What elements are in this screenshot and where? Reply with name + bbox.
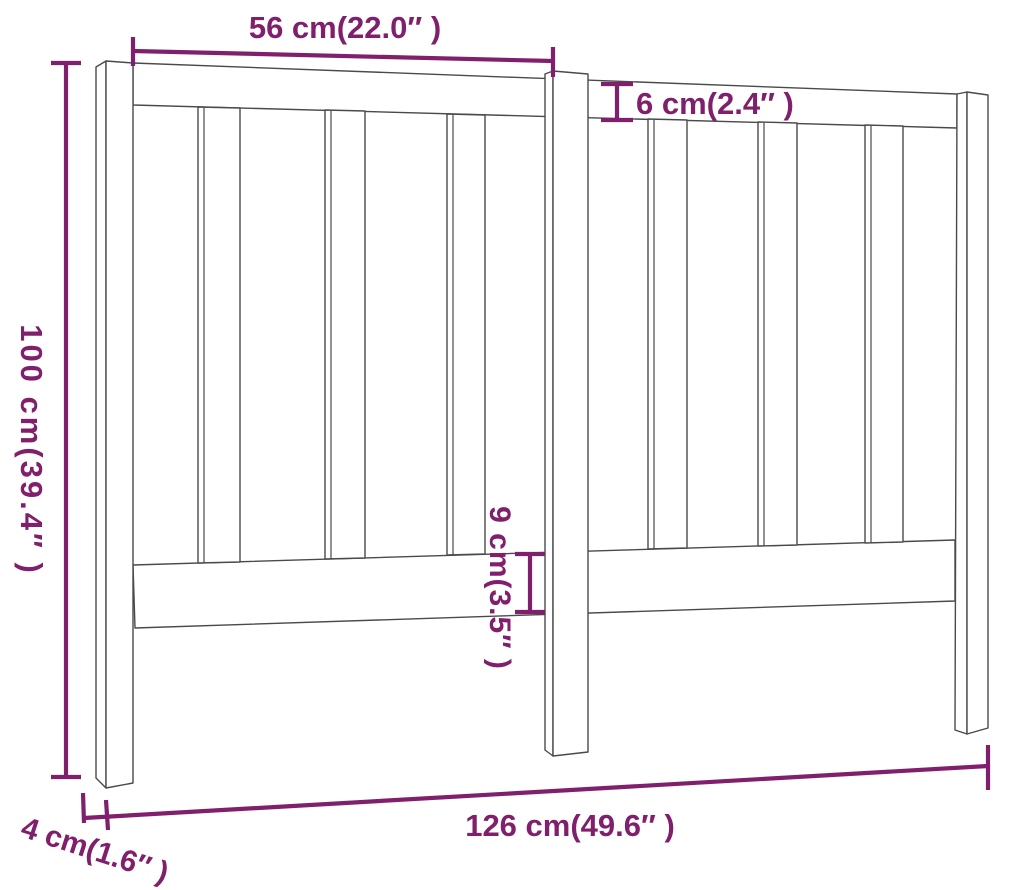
right-leg-front-face	[967, 92, 988, 734]
left-leg-side-face	[96, 61, 106, 788]
dimension-label-overall-width: 126 cm(49.6″ )	[465, 808, 675, 843]
left-leg	[96, 61, 133, 788]
dimension-overall-width: 126 cm(49.6″ )	[84, 745, 988, 843]
headboard-dimension-diagram: 56 cm(22.0″ ) 6 cm(2.4″ ) 100 cm(39.4″ )…	[0, 0, 1013, 890]
right-leg-side-face	[955, 92, 967, 734]
dimension-overall-height: 100 cm(39.4″ )	[14, 63, 81, 777]
dimension-label-top-rail-height: 6 cm(2.4″ )	[636, 86, 794, 121]
slats-left-section	[198, 107, 485, 563]
dimension-label-bottom-rail-height: 9 cm(3.5″ )	[483, 506, 516, 670]
center-post	[545, 71, 588, 756]
slats-right-section	[648, 119, 903, 549]
center-post-front-face	[553, 71, 588, 756]
left-leg-front-face	[106, 61, 133, 788]
dimension-end-tick	[83, 793, 84, 823]
dimension-end-tick	[106, 800, 108, 830]
dimension-label-top-width: 56 cm(22.0″ )	[249, 10, 441, 45]
right-leg	[955, 92, 988, 734]
headboard-drawing	[96, 61, 988, 788]
center-post-side-face	[545, 71, 553, 756]
dimension-label-leg-depth: 4 cm(1.6″ )	[17, 811, 173, 890]
dimension-line	[133, 51, 553, 61]
diagram-canvas: 56 cm(22.0″ ) 6 cm(2.4″ ) 100 cm(39.4″ )…	[0, 0, 1013, 890]
dimension-label-overall-height: 100 cm(39.4″ )	[14, 324, 49, 576]
dimension-leg-depth: 4 cm(1.6″ )	[17, 793, 173, 890]
